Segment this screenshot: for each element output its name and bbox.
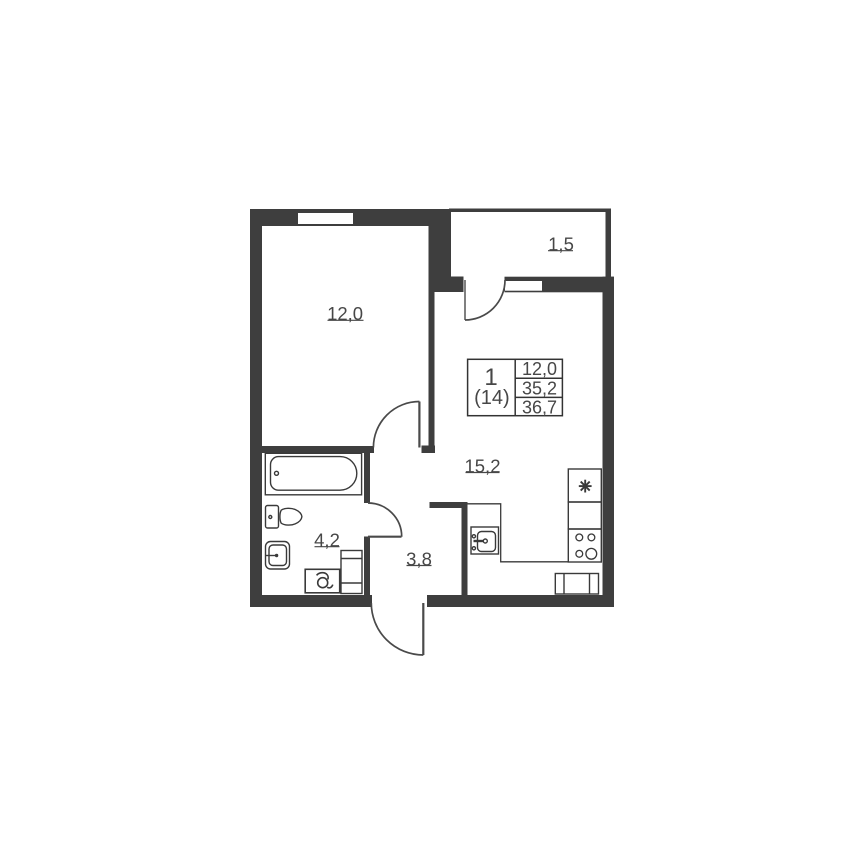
svg-text:15,2: 15,2 — [464, 455, 500, 476]
svg-text:4,2: 4,2 — [314, 530, 340, 551]
svg-text:12,0: 12,0 — [327, 303, 363, 324]
svg-text:12,0: 12,0 — [522, 359, 557, 379]
svg-text:(14): (14) — [474, 387, 510, 409]
svg-text:35,2: 35,2 — [522, 378, 557, 398]
svg-text:3,8: 3,8 — [406, 548, 432, 569]
svg-text:36,7: 36,7 — [522, 398, 557, 418]
svg-text:1,5: 1,5 — [548, 234, 574, 255]
